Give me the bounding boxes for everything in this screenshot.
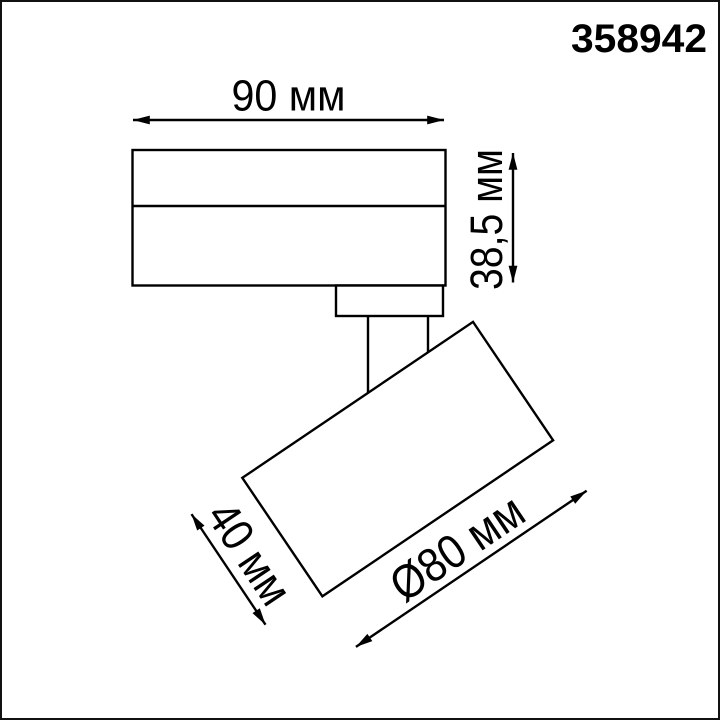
svg-text:38,5 мм: 38,5 мм [461, 149, 512, 290]
svg-text:90 мм: 90 мм [232, 73, 346, 121]
svg-text:358942: 358942 [571, 17, 707, 61]
